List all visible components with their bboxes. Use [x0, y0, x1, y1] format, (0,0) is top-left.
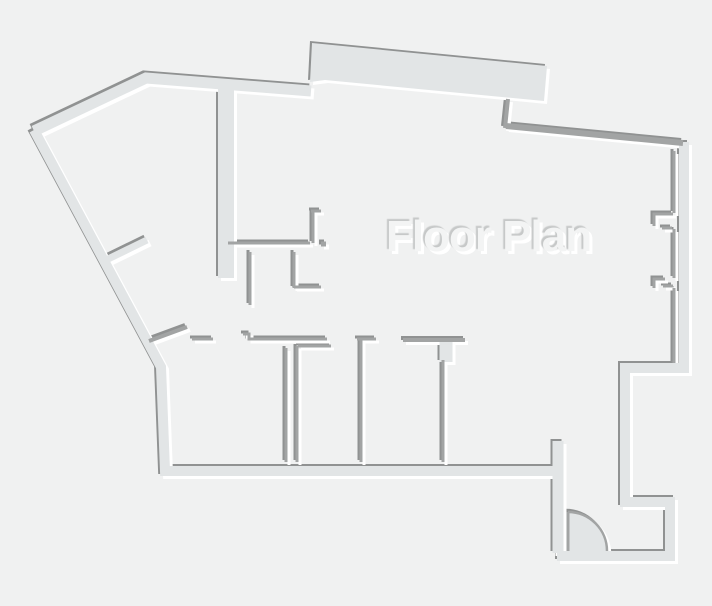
wall-top-terrace-slab [310, 43, 547, 101]
wall-top-right-wall [506, 126, 683, 143]
wall-outer-top-left [34, 78, 311, 131]
floor-plan-title: Floor Plan [386, 212, 591, 262]
floor-plan-canvas: Floor Plan [0, 0, 712, 606]
wall-outer-right-stepped [557, 142, 684, 556]
wall-room1-top-right [243, 334, 327, 339]
wall-window-jamb1 [654, 214, 673, 226]
wall-hall-branch-wall [104, 240, 147, 261]
wall-left-door-leaf [149, 327, 187, 341]
walls-group [34, 43, 684, 556]
floor-plan-drawing [0, 0, 712, 606]
